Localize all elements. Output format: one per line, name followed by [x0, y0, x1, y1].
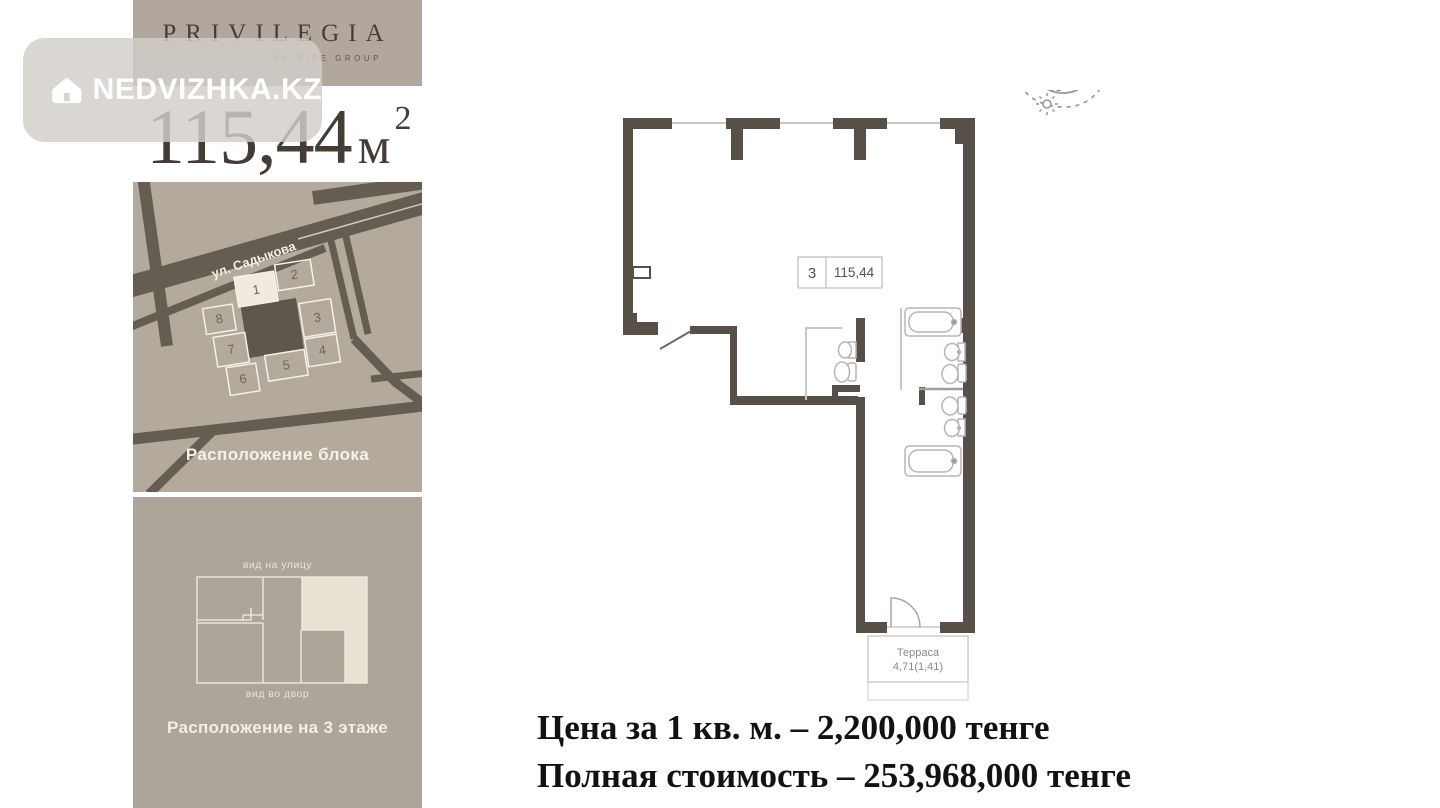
block-5-number: 5: [282, 357, 291, 373]
site-map-card: 1 2 3 4 5 6 7 8 ул. Садыкова Расположени…: [133, 182, 422, 492]
block-4-number: 4: [318, 342, 327, 358]
unit-number: 3: [808, 265, 816, 282]
floor-caption: Расположение на 3 этаже: [133, 718, 422, 738]
price-total: Полная стоимость – 253,968,000 тенге: [537, 752, 1131, 800]
house-icon: [51, 64, 83, 116]
street-side-label: вид на улицу: [133, 559, 422, 571]
house-door: [64, 93, 70, 101]
price-block: Цена за 1 кв. м. – 2,200,000 тенге Полна…: [537, 704, 1131, 800]
block-7-number: 7: [226, 341, 235, 357]
unit-area: 115,44: [834, 265, 875, 280]
yard-side-label: вид во двор: [133, 688, 422, 700]
unit-label-box: 3 115,44: [798, 257, 882, 288]
road-median: [298, 203, 422, 239]
compass-south: Ю: [1051, 90, 1064, 94]
area-unit: м: [358, 118, 391, 175]
terrace-area: 4,71(1,41): [893, 661, 943, 673]
toilet-lower: [958, 397, 966, 414]
compass: С В Ю З: [1007, 90, 1111, 115]
floor-position-card: вид на улицу вид во двор Расположение на…: [133, 497, 422, 808]
watermark-badge: NEDVIZHKA.KZ: [23, 38, 322, 142]
block-8-number: 8: [215, 311, 224, 327]
map-caption: Расположение блока: [133, 445, 422, 465]
sun-icon: [1036, 93, 1058, 115]
block-2-number: 2: [290, 266, 299, 282]
watermark-brand: NEDVIZHKA.KZ: [93, 73, 322, 107]
block-3-number: 3: [313, 309, 322, 325]
toilet-upper: [958, 364, 966, 382]
listing-image: PRIVILEGIA BY RISE GROUP 115,44м2: [0, 0, 1440, 808]
floor-plan: 3 115,44 Терраса 4,71(1,41): [600, 90, 1120, 710]
duct-shaft: [633, 267, 650, 278]
terrace-door-arc: [891, 598, 920, 627]
terrace: Терраса 4,71(1,41): [868, 636, 968, 700]
floor-position-diagram: [133, 497, 422, 808]
walls: [623, 118, 975, 633]
terrace-name: Терраса: [897, 647, 940, 659]
block-6-number: 6: [238, 371, 247, 387]
area-power: 2: [395, 100, 412, 137]
courtyard-core: [241, 298, 304, 358]
entry-door-leaf: [660, 331, 691, 349]
price-per-m2: Цена за 1 кв. м. – 2,200,000 тенге: [537, 704, 1131, 752]
